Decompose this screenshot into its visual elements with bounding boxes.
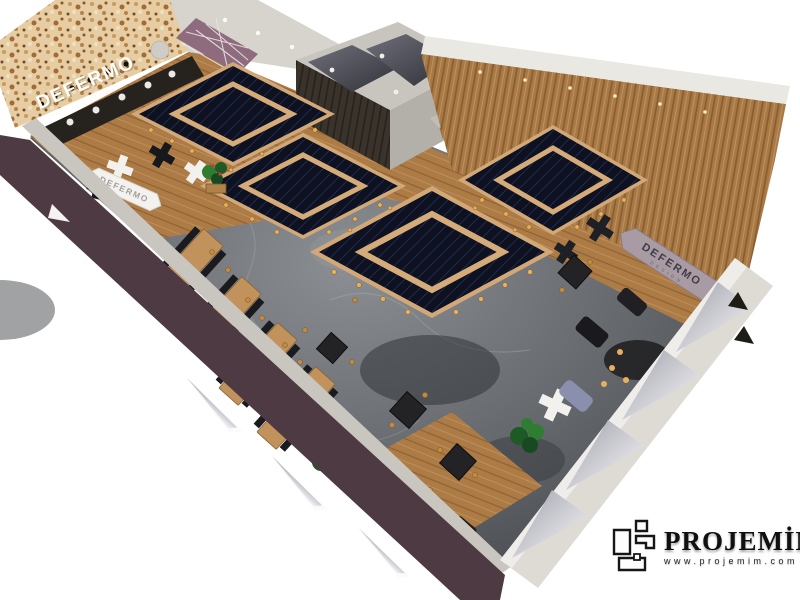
render-canvas: DEFERMO DEFERMO DESIGN xyxy=(0,0,800,600)
projemim-logo-icon xyxy=(610,518,662,576)
watermark: PROJEMİM www.projemim.com xyxy=(610,514,798,584)
watermark-brand: PROJEMİM xyxy=(664,528,800,555)
restaurant-3d-render: DEFERMO DEFERMO DESIGN xyxy=(0,0,800,600)
watermark-url: www.projemim.com xyxy=(664,556,800,566)
